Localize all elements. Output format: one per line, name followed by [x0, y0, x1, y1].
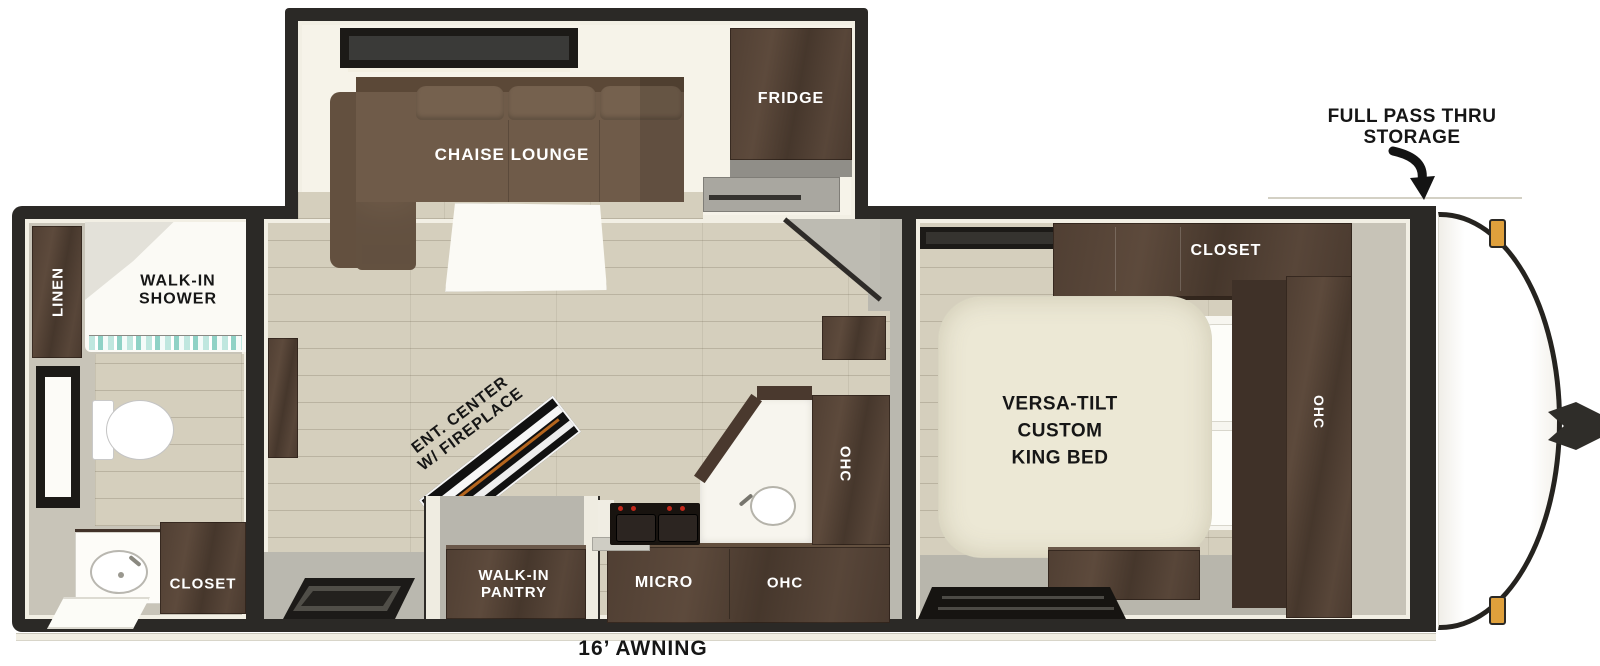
bedroom-wardrobe — [1286, 276, 1352, 618]
bedroom-wall — [902, 206, 916, 632]
burner-light — [618, 506, 623, 511]
burner-light — [680, 506, 685, 511]
bathroom-window — [36, 366, 80, 508]
bathroom-wall — [246, 206, 264, 632]
hall-strip — [890, 300, 902, 619]
bathroom-closet — [160, 522, 246, 614]
living-window — [340, 28, 578, 68]
sink-drain — [118, 572, 124, 578]
window-inner-line — [942, 596, 1104, 599]
king-bed — [938, 296, 1212, 558]
pantry-wall-left — [424, 496, 440, 619]
window-inner-line — [938, 607, 1114, 610]
clearance-light-bottom — [1489, 596, 1506, 625]
bath-mat — [47, 597, 150, 629]
wardrobe-side — [1232, 280, 1286, 608]
linen-cabinet — [32, 226, 82, 358]
cooktop — [610, 503, 700, 545]
clearance-light-top — [1489, 219, 1506, 248]
fridge — [730, 28, 852, 160]
counter-top-trim — [757, 386, 812, 400]
vanity — [75, 532, 165, 604]
sofa-seam — [599, 120, 600, 202]
sofa-body — [356, 77, 684, 202]
kitchen-sink — [750, 486, 796, 526]
grate — [616, 514, 656, 542]
sofa-cushion — [416, 86, 504, 120]
toilet-bowl — [106, 400, 174, 460]
bedroom-gray-right — [1352, 223, 1406, 615]
cabinet-divider — [1180, 227, 1181, 291]
cabinet-divider — [1115, 227, 1116, 291]
burner-light — [631, 506, 636, 511]
awning-rail — [16, 633, 1436, 641]
pass-thru-arrow-icon — [1388, 146, 1438, 202]
kitchen-tall-cabinet — [812, 395, 890, 545]
shower-glass — [89, 335, 242, 350]
pantry-shelf — [446, 545, 586, 619]
entry-mat-core — [301, 591, 397, 606]
kitchen-base-cabinets — [607, 543, 890, 623]
sofa-shadow — [640, 77, 684, 202]
walk-in-shower — [85, 222, 246, 352]
pass-thru-label: FULL PASS THRU STORAGE — [1328, 106, 1497, 148]
burner-light — [667, 506, 672, 511]
sofa-seam — [508, 120, 509, 202]
tv-panel — [268, 338, 298, 458]
living-window-sill — [348, 68, 570, 72]
coffee-table — [445, 203, 607, 292]
shower-shadow — [85, 222, 246, 352]
entry-mat — [283, 578, 415, 619]
grate — [658, 514, 698, 542]
bedroom-window-bottom — [918, 587, 1126, 619]
entry-step-upper — [730, 160, 852, 177]
floorplan-canvas: LINEN WALK-IN SHOWER CLOSET CHAISE LOUNG… — [0, 0, 1600, 666]
sofa-cushion — [508, 86, 596, 120]
cabinet-divider — [729, 549, 730, 619]
entry-step — [703, 177, 840, 212]
kitchen-wall-cabinet — [822, 316, 886, 360]
front-cap — [1438, 212, 1562, 630]
